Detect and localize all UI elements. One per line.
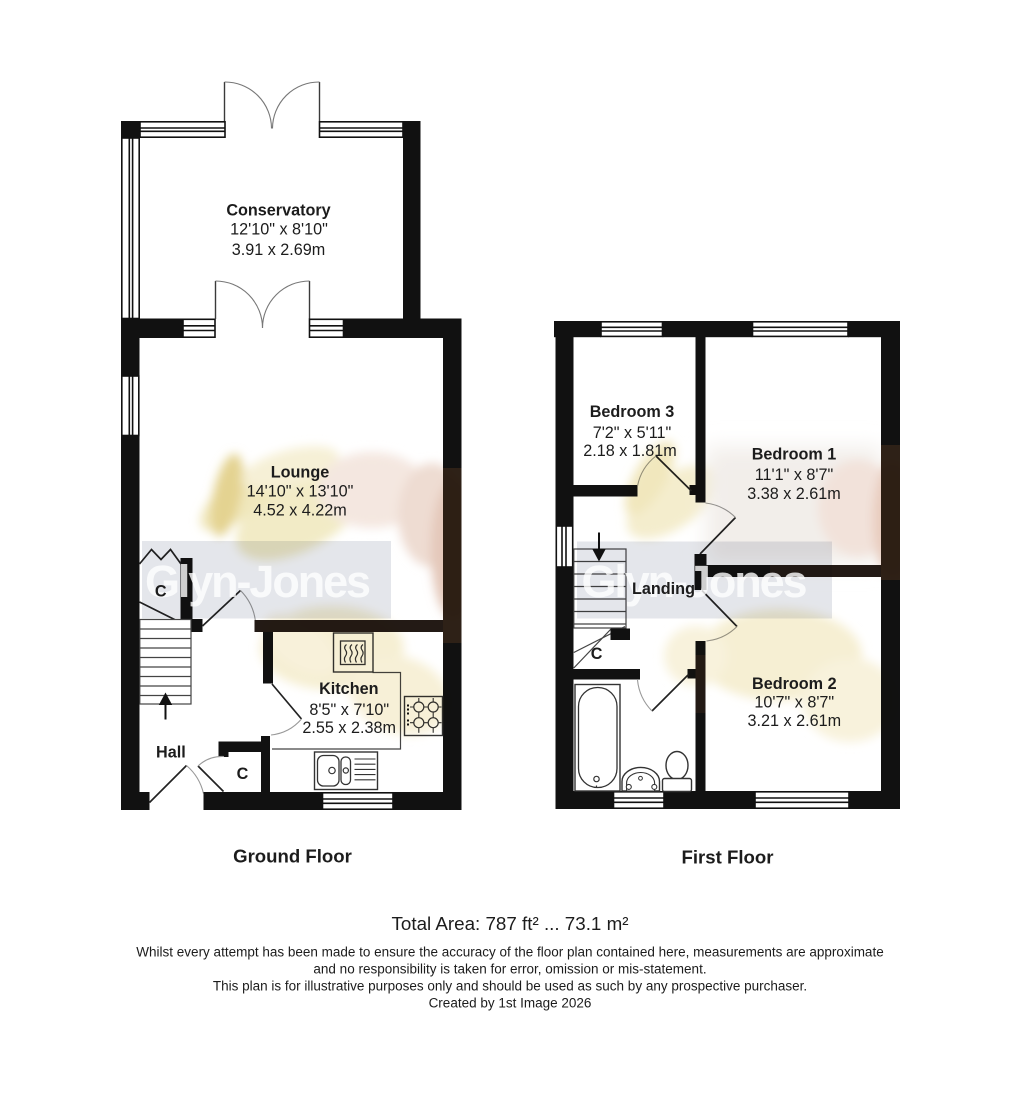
svg-text:10'7" x 8'7": 10'7" x 8'7" — [754, 694, 834, 712]
svg-text:14'10" x 13'10": 14'10" x 13'10" — [247, 483, 354, 501]
svg-text:Created by 1st Image 2026: Created by 1st Image 2026 — [429, 996, 592, 1011]
svg-text:Whilst every attempt has been: Whilst every attempt has been made to en… — [136, 945, 883, 960]
svg-text:8'5" x 7'10": 8'5" x 7'10" — [309, 701, 389, 719]
svg-text:Kitchen: Kitchen — [319, 680, 378, 698]
svg-text:C: C — [591, 645, 603, 663]
svg-text:Lounge: Lounge — [271, 464, 329, 482]
svg-text:12'10" x 8'10": 12'10" x 8'10" — [230, 220, 328, 238]
svg-text:2.55 x 2.38m: 2.55 x 2.38m — [302, 719, 396, 737]
svg-text:2.18 x 1.81m: 2.18 x 1.81m — [583, 442, 677, 460]
svg-text:7'2" x 5'11": 7'2" x 5'11" — [593, 424, 672, 442]
svg-text:Glyn-Jones: Glyn-Jones — [145, 556, 371, 607]
svg-text:Landing: Landing — [632, 580, 695, 598]
svg-text:3.91 x 2.69m: 3.91 x 2.69m — [232, 241, 326, 259]
svg-text:3.38 x 2.61m: 3.38 x 2.61m — [747, 485, 841, 503]
svg-text:First Floor: First Floor — [682, 847, 774, 868]
svg-text:C: C — [155, 583, 167, 601]
svg-text:C: C — [237, 765, 249, 783]
svg-text:Bedroom 2: Bedroom 2 — [752, 675, 837, 693]
svg-text:and no responsibility is taken: and no responsibility is taken for error… — [313, 962, 706, 977]
svg-text:Hall: Hall — [156, 744, 186, 762]
svg-text:4.52 x 4.22m: 4.52 x 4.22m — [253, 502, 347, 520]
svg-text:Ground Floor: Ground Floor — [233, 846, 352, 867]
svg-text:This plan is for illustrative: This plan is for illustrative purposes o… — [213, 979, 807, 994]
svg-text:Total Area: 787 ft² ... 73.1 m: Total Area: 787 ft² ... 73.1 m² — [392, 913, 629, 934]
svg-text:Bedroom 1: Bedroom 1 — [752, 446, 837, 464]
svg-text:11'1" x 8'7": 11'1" x 8'7" — [755, 466, 834, 484]
svg-text:Bedroom 3: Bedroom 3 — [590, 403, 675, 421]
svg-text:Conservatory: Conservatory — [226, 202, 330, 220]
svg-text:3.21 x 2.61m: 3.21 x 2.61m — [748, 712, 842, 730]
